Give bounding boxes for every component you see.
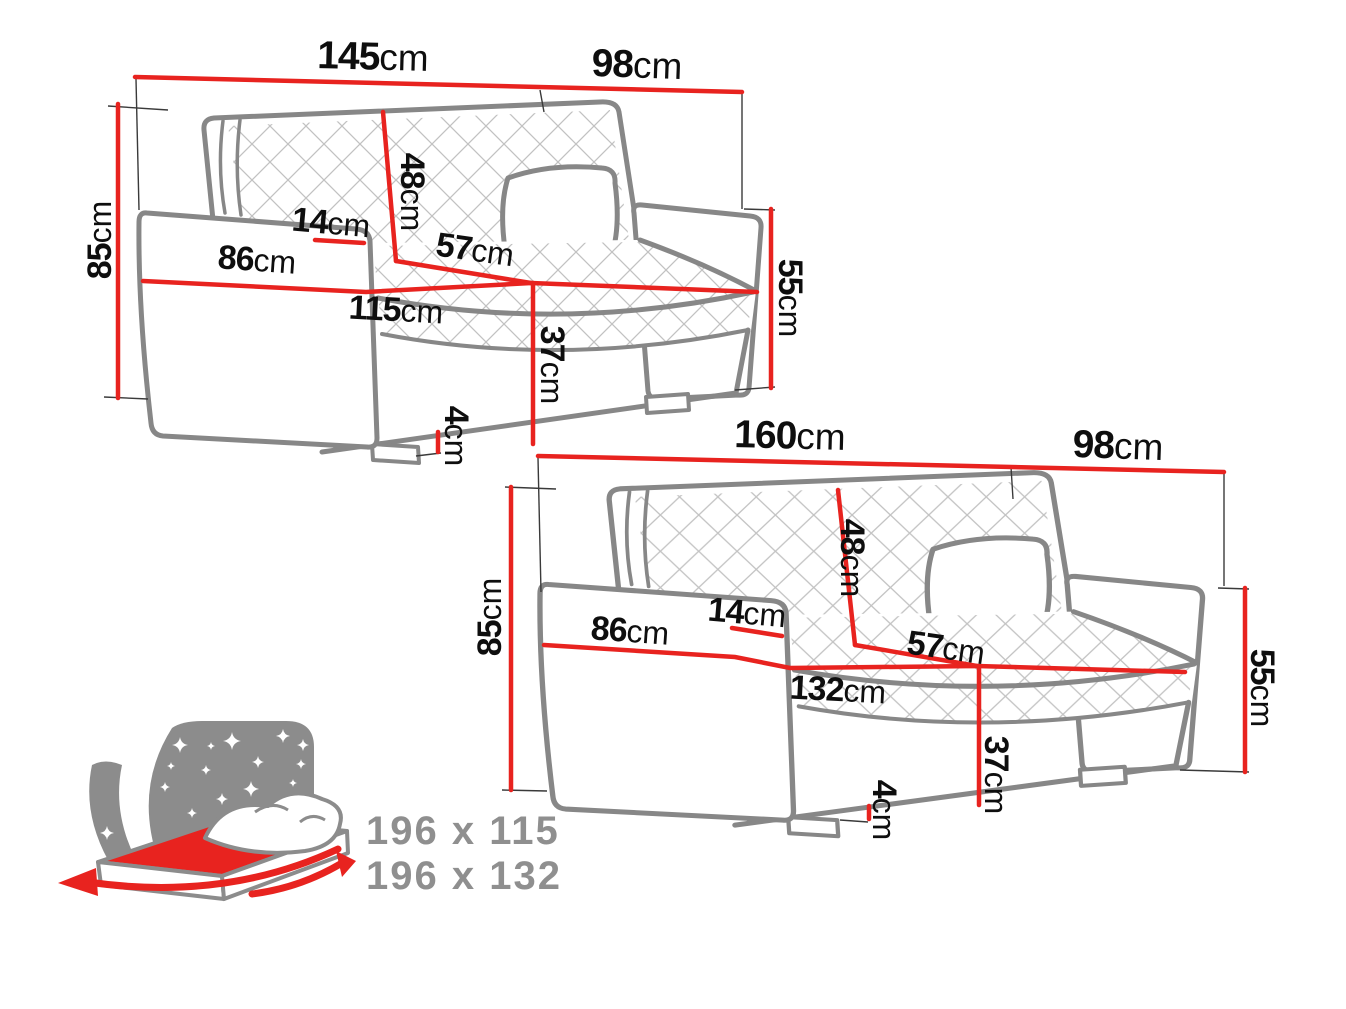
dim-value: 57 <box>433 226 474 269</box>
dim-label-sofa-small-arm-height: 55cm <box>773 259 807 337</box>
bed-size-1: 196 x 115 <box>366 811 560 851</box>
dim-unit: cm <box>625 613 670 652</box>
dim-label-sofa-large-seat-width: 132cm <box>789 671 887 710</box>
bed-size-2: 196 x 132 <box>366 856 562 896</box>
night-sky-small-shape <box>89 762 136 861</box>
dim-unit: cm <box>978 772 1014 815</box>
dim-unit: cm <box>394 189 430 232</box>
dim-value: 86 <box>590 609 628 649</box>
dim-value: 4 <box>437 406 475 424</box>
dim-label-sofa-small-backrest: 48cm <box>395 153 429 231</box>
diagram-canvas <box>0 0 1346 1009</box>
dim-unit: cm <box>82 201 118 244</box>
dim-unit: cm <box>252 242 297 281</box>
dim-unit: cm <box>632 44 683 87</box>
dim-value: 98 <box>1072 423 1115 467</box>
dim-unit: cm <box>772 295 808 338</box>
dim-label-sofa-small-seat-height: 37cm <box>535 326 569 404</box>
dim-value: 160 <box>734 413 797 458</box>
dim-unit: cm <box>940 630 987 672</box>
dim-unit: cm <box>534 362 570 405</box>
dim-value: 55 <box>1243 649 1281 685</box>
dim-label-sofa-small-legs: 4cm <box>439 406 473 467</box>
dim-unit: cm <box>866 798 902 841</box>
dim-value: 57 <box>904 624 945 667</box>
dim-label-sofa-large-backrest: 48cm <box>835 519 869 597</box>
sofa-bed-icon <box>58 721 356 899</box>
dim-label-sofa-small-arm-width: 14cm <box>290 203 371 244</box>
dim-value: 145 <box>317 34 380 79</box>
dim-value: 48 <box>393 153 431 189</box>
dim-unit: cm <box>742 595 788 635</box>
dim-label-sofa-large-legs: 4cm <box>867 780 901 841</box>
dim-unit: cm <box>469 232 516 274</box>
dim-unit: cm <box>438 424 474 467</box>
dim-unit: cm <box>400 292 444 330</box>
dim-value: 37 <box>533 326 571 362</box>
dim-value: 14 <box>706 591 745 632</box>
dim-label-sofa-large-width: 160cm <box>734 415 846 457</box>
dim-label-sofa-large-seat-height: 37cm <box>979 736 1013 814</box>
dim-value: 37 <box>977 736 1015 772</box>
dim-label-sofa-small-depth: 98cm <box>591 44 683 86</box>
dim-label-sofa-large-arm-depth: 86cm <box>590 611 671 650</box>
dim-label-sofa-large-depth: 98cm <box>1072 425 1164 467</box>
dim-label-sofa-large-arm-width: 14cm <box>706 593 787 634</box>
dim-label-sofa-large-arm-height: 55cm <box>1245 649 1279 727</box>
dim-label-sofa-small-arm-depth: 86cm <box>217 240 298 279</box>
dim-value: 132 <box>789 669 845 710</box>
dim-unit: cm <box>379 37 429 79</box>
dim-label-sofa-small-seat-width: 115cm <box>348 291 444 330</box>
dim-value: 115 <box>348 289 402 330</box>
dim-label-sofa-large-height: 85cm <box>473 578 507 656</box>
dim-value: 48 <box>833 519 871 555</box>
dim-value: 4 <box>865 780 903 798</box>
sofa-dimensions-diagram: 145cm 98cm 85cm 48cm 14cm 86cm 57cm 115c… <box>0 0 1346 1009</box>
dim-value: 85 <box>471 620 509 656</box>
dim-value: 14 <box>290 201 329 242</box>
dim-unit: cm <box>796 416 846 458</box>
dim-value: 98 <box>591 42 634 86</box>
dim-unit: cm <box>326 205 372 245</box>
dim-value: 55 <box>771 259 809 295</box>
dim-unit: cm <box>472 578 508 621</box>
dim-value: 85 <box>81 243 119 279</box>
dim-unit: cm <box>843 672 887 710</box>
dim-value: 86 <box>217 238 255 278</box>
dim-label-sofa-small-width: 145cm <box>317 36 429 78</box>
dim-unit: cm <box>1113 425 1164 468</box>
dim-label-sofa-small-height: 85cm <box>83 201 117 279</box>
dim-unit: cm <box>1244 685 1280 728</box>
dim-unit: cm <box>834 555 870 598</box>
